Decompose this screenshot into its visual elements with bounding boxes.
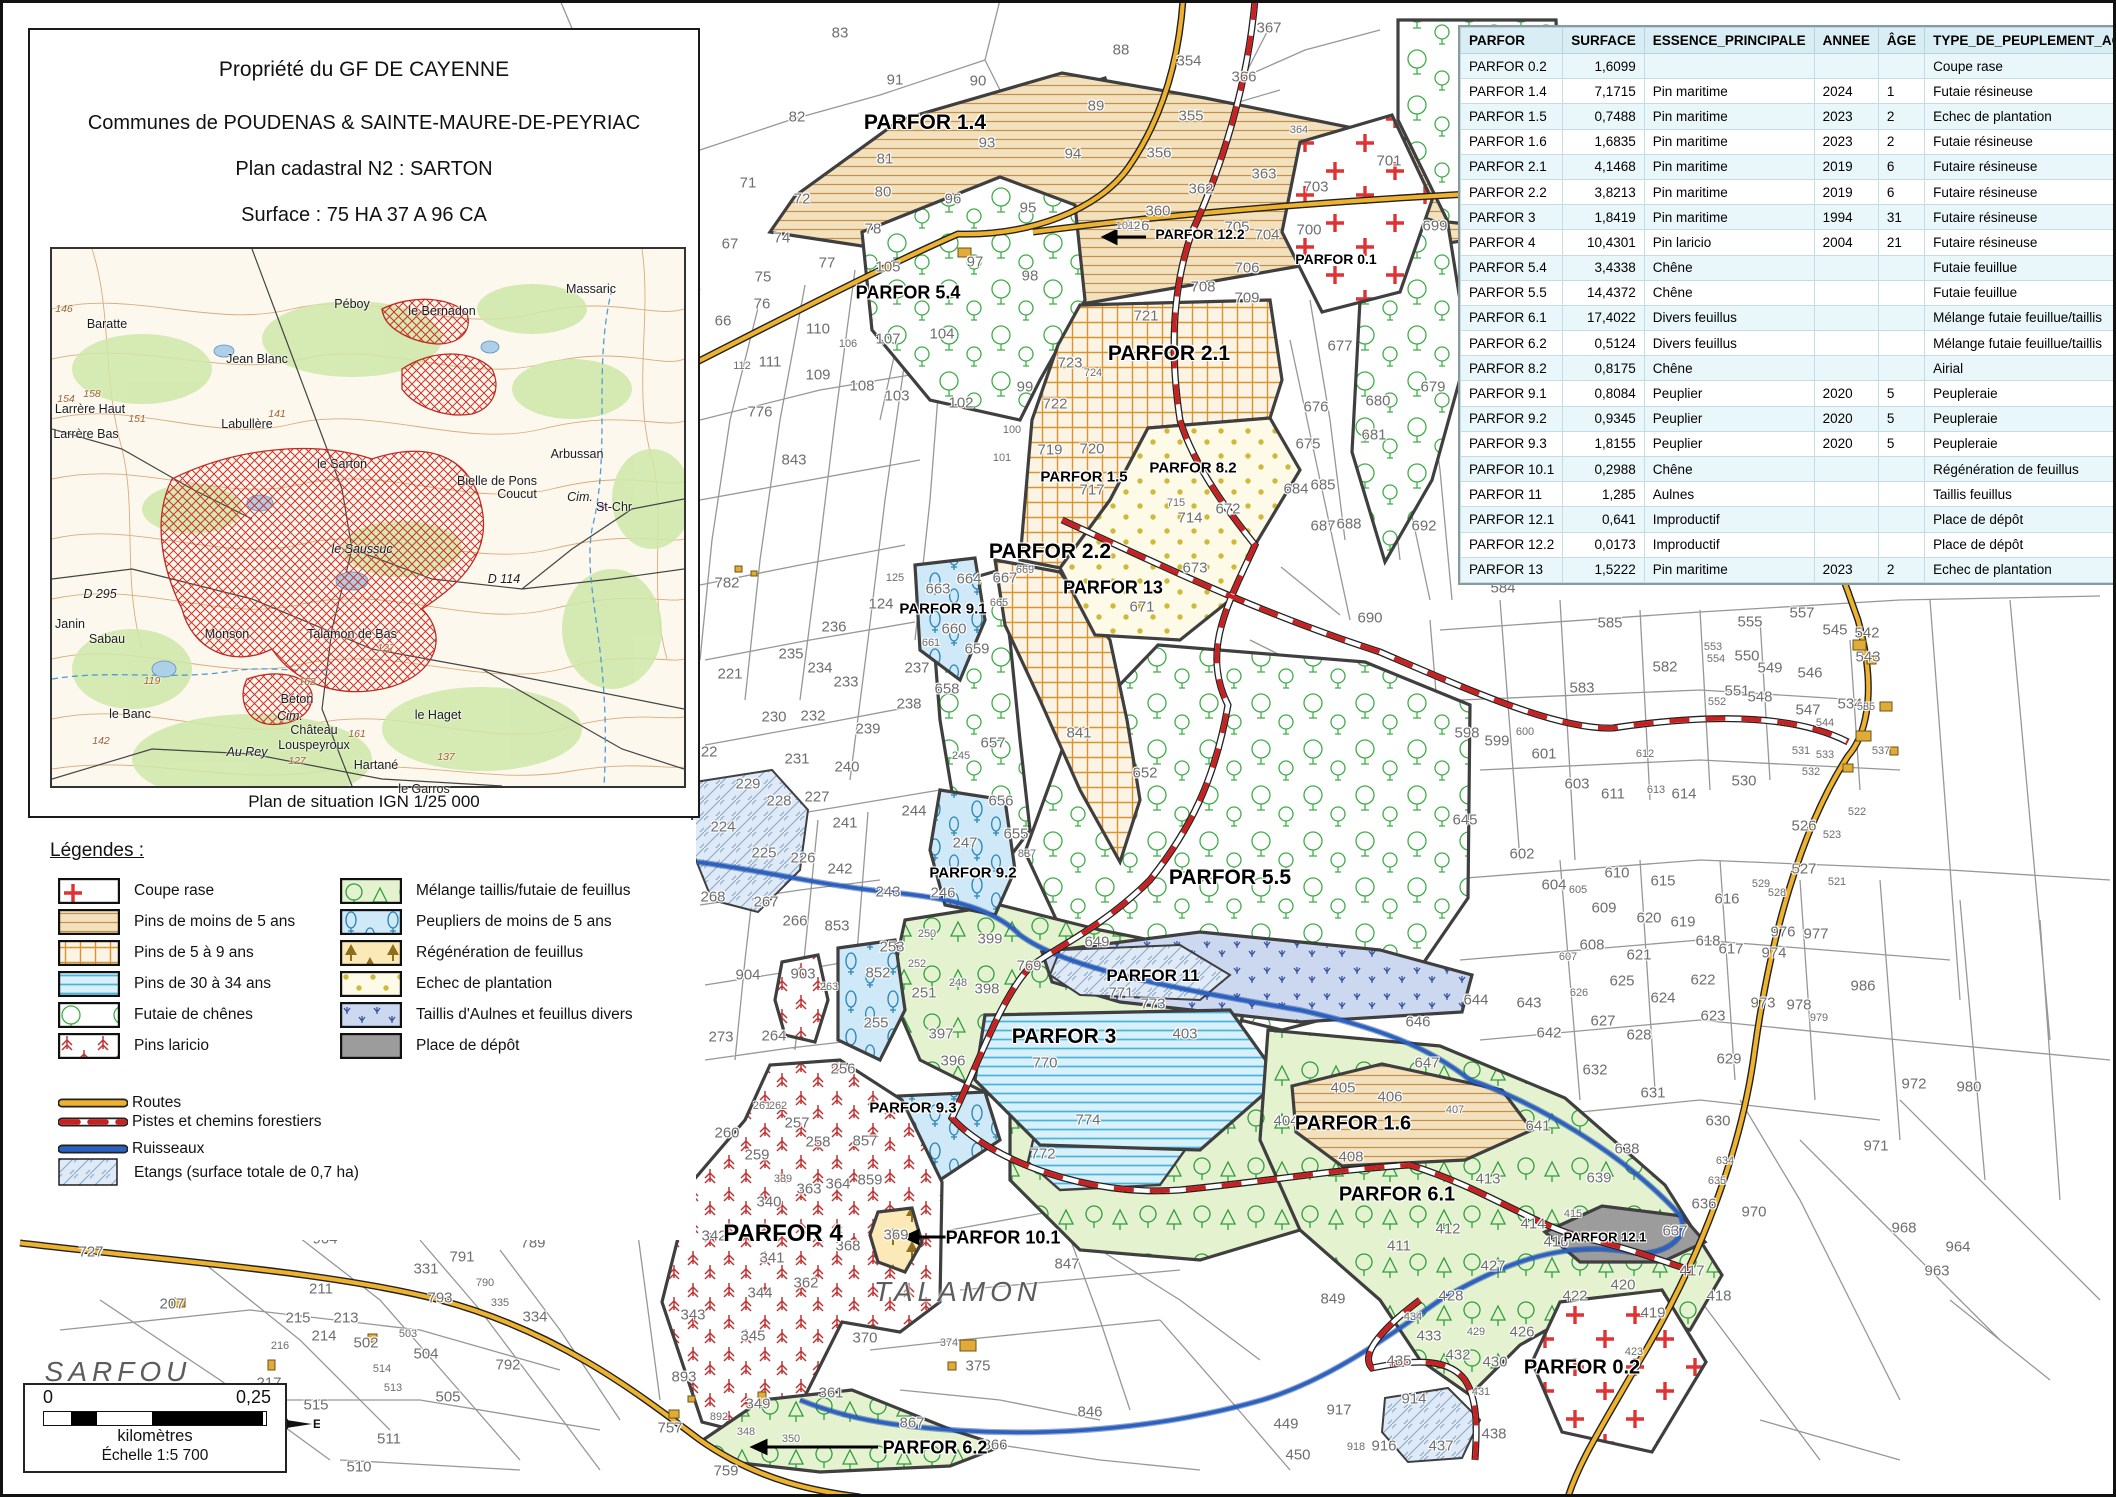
table-cell: Pin maritime	[1644, 129, 1814, 154]
legend-swatch	[58, 1033, 120, 1064]
table-cell: 1,5222	[1563, 557, 1645, 582]
parcel-number: 681	[1361, 427, 1386, 444]
parcel-number: 677	[1327, 338, 1352, 355]
parcel-number: 430	[1482, 1354, 1507, 1371]
parcel-number: 706	[1234, 260, 1259, 277]
parcel-number: 637	[1662, 1223, 1687, 1240]
parcel-number: 669	[1016, 564, 1034, 576]
inset-place-label: 141	[268, 408, 286, 420]
parcel-number: 531	[1792, 745, 1810, 757]
parcel-number: 582	[1652, 659, 1677, 676]
parcel-number: 449	[1273, 1416, 1298, 1433]
parcel-number: 411	[1387, 1238, 1411, 1255]
parcel-number: 699	[1422, 218, 1447, 235]
table-cell: PARFOR 1.4	[1461, 79, 1563, 104]
table-cell: 17,4022	[1563, 305, 1645, 330]
inset-place-label: Cim.	[567, 490, 593, 504]
table-cell: Airial	[1925, 356, 2116, 381]
parcel-number: 849	[1320, 1291, 1345, 1308]
parcel-number: 655	[1003, 826, 1028, 843]
parfor-label: PARFOR 6.2	[883, 1438, 988, 1459]
parcel-number: 792	[495, 1357, 520, 1374]
parcel-number: 555	[1737, 614, 1762, 631]
table-cell: PARFOR 11	[1461, 482, 1563, 507]
table-cell	[1878, 280, 1924, 305]
parcel-number: 679	[1420, 379, 1445, 396]
parcel-number: 403	[1172, 1026, 1197, 1043]
parcel-number: 96	[945, 191, 962, 208]
table-row: PARFOR 1.61,6835Pin maritime20232Futaie …	[1461, 129, 2116, 154]
parcel-number: 585	[1597, 615, 1622, 632]
parcel-number: 621	[1626, 947, 1651, 964]
parfor-label: PARFOR 13	[1063, 578, 1163, 599]
parcel-number: 528	[1768, 887, 1786, 899]
table-cell: Futaire résineuse	[1925, 205, 2116, 230]
parcel-number: 914	[1401, 1391, 1426, 1408]
column-header: ÂGE	[1878, 28, 1924, 54]
table-cell	[1878, 54, 1924, 79]
parcel-number: 226	[790, 850, 815, 867]
inset-place-label: St-Chr	[596, 500, 632, 514]
table-cell: PARFOR 5.4	[1461, 255, 1563, 280]
table-row: PARFOR 12.10,641ImproductifPlace de dépô…	[1461, 507, 2116, 532]
piste-line-swatch	[58, 1115, 128, 1134]
parfor-label: PARFOR 5.4	[856, 283, 961, 304]
table-cell: Echec de plantation	[1925, 104, 2116, 129]
table-cell: PARFOR 3	[1461, 205, 1563, 230]
legend-swatch	[340, 1033, 402, 1064]
parcel-number: 771	[1108, 985, 1133, 1002]
parcel-number: 234	[807, 660, 832, 677]
parcel-number: 434	[1404, 1311, 1422, 1323]
parcel-number: 431	[1472, 1386, 1490, 1398]
scale-ratio: Échelle 1:5 700	[25, 1447, 285, 1465]
parcel-number: 642	[1536, 1025, 1561, 1042]
parcel-number: 363	[796, 1181, 821, 1198]
parcel-number: 546	[1797, 665, 1822, 682]
inset-place-label: 137	[437, 751, 455, 763]
parcel-number: 533	[1816, 749, 1834, 761]
column-header: SURFACE	[1563, 28, 1645, 54]
parcel-number: 213	[333, 1310, 358, 1327]
parcel-number: 251	[911, 985, 936, 1002]
parcel-number: 770	[1032, 1055, 1057, 1072]
parcel-number: 107	[875, 331, 900, 348]
legend-swatch	[340, 940, 402, 971]
table-cell: Improductif	[1644, 532, 1814, 557]
parcel-number: 665	[990, 597, 1008, 609]
property-title: Propriété du GF DE CAYENNE	[30, 58, 698, 82]
parcel-number: 639	[1586, 1170, 1611, 1187]
table-cell	[1814, 482, 1878, 507]
table-cell: Futaie feuillue	[1925, 255, 2116, 280]
parcel-number: 532	[1802, 766, 1820, 778]
parcel-number: 979	[1810, 1012, 1828, 1024]
table-cell: Mélange futaie feuillue/taillis	[1925, 331, 2116, 356]
table-cell: 3,4338	[1563, 255, 1645, 280]
route-line-swatch	[58, 1096, 128, 1115]
parcel-number: 243	[875, 884, 900, 901]
parcel-number: 527	[1791, 861, 1816, 878]
table-row: PARFOR 9.10,8084Peuplier20205Peupleraie	[1461, 381, 2116, 406]
parfor-label: PARFOR 0.1	[1295, 251, 1376, 267]
svg-text:E: E	[313, 1417, 320, 1431]
table-row: PARFOR 5.514,4372ChêneFutaie feuillue	[1461, 280, 2116, 305]
table-row: PARFOR 131,5222Pin maritime20232Echec de…	[1461, 557, 2116, 582]
parcel-number: 598	[1454, 725, 1479, 742]
parcel-number: 253	[879, 939, 904, 956]
parcel-number: 671	[1129, 599, 1154, 616]
parcel-number: 904	[735, 967, 760, 984]
parcel-number: 267	[753, 894, 778, 911]
inset-place-label: le Saussuc	[331, 542, 392, 556]
parfor-label: PARFOR 4	[723, 1220, 843, 1248]
legend-item-label: Mélange taillis/futaie de feuillus	[416, 882, 631, 900]
parcel-number: 105	[875, 259, 900, 276]
inset-place-label: 161	[348, 728, 366, 740]
scale-bar-segments	[43, 1411, 267, 1426]
parcel-number: 976	[1770, 924, 1795, 941]
parcel-number: 657	[980, 735, 1005, 752]
parcel-number: 963	[1924, 1263, 1949, 1280]
parcel-number: 90	[970, 73, 987, 90]
parcel-number: 614	[1671, 786, 1696, 803]
parcel-number: 628	[1626, 1027, 1651, 1044]
parcel-number: 646	[1405, 1014, 1430, 1031]
parcel-number: 258	[805, 1134, 830, 1151]
parcel-number: 658	[934, 681, 959, 698]
parcel-number: 599	[1484, 733, 1509, 750]
parcel-number: 608	[1579, 937, 1604, 954]
parcel-number: 846	[1077, 1404, 1102, 1421]
legend-panel: Légendes : Coupe rasePins de moins de 5 …	[28, 820, 696, 1240]
parcel-number: 859	[857, 1172, 882, 1189]
inset-place-label: Baratte	[87, 317, 127, 331]
parfor-label: PARFOR 9.1	[899, 601, 986, 618]
parcel-number: 339	[774, 1173, 792, 1185]
table-cell: 2019	[1814, 179, 1878, 204]
parcel-number: 664	[956, 571, 981, 588]
parcel-number: 112	[733, 360, 751, 372]
table-cell: Futaire résineuse	[1925, 154, 2116, 179]
parcel-number: 505	[435, 1389, 460, 1406]
table-cell: 5	[1878, 406, 1924, 431]
parcel-number: 613	[1647, 784, 1665, 796]
table-cell: 2	[1878, 557, 1924, 582]
table-cell: 1,6835	[1563, 129, 1645, 154]
parcel-number: 700	[1296, 222, 1321, 239]
parcel-number: 406	[1377, 1089, 1402, 1106]
table-cell: PARFOR 13	[1461, 557, 1563, 582]
parfor-label: PARFOR 8.2	[1149, 460, 1236, 477]
inset-place-label: 142	[92, 735, 110, 747]
table-cell: 2004	[1814, 230, 1878, 255]
table-cell: PARFOR 9.3	[1461, 431, 1563, 456]
parcel-number: 636	[1691, 1196, 1716, 1213]
parcel-number: 504	[413, 1346, 438, 1363]
table-cell: 2020	[1814, 381, 1878, 406]
parcel-number: 72	[794, 191, 811, 208]
inset-place-label: le Haget	[415, 708, 462, 722]
parcel-number: 356	[1146, 145, 1171, 162]
parcel-number: 273	[708, 1029, 733, 1046]
table-cell: 6	[1878, 179, 1924, 204]
parcel-number: 418	[1706, 1288, 1731, 1305]
table-cell: PARFOR 8.2	[1461, 356, 1563, 381]
table-cell	[1814, 54, 1878, 79]
parcel-number: 396	[940, 1053, 965, 1070]
table-row: PARFOR 2.14,1468Pin maritime20196Futaire…	[1461, 154, 2116, 179]
parcel-number: 918	[1347, 1441, 1365, 1453]
parcel-number: 605	[1569, 884, 1587, 896]
parcel-number: 231	[784, 751, 809, 768]
parcel-number: 772	[1030, 1146, 1055, 1163]
parcel-number: 722	[1042, 396, 1067, 413]
inset-place-label: Péboy	[334, 297, 369, 311]
parcel-number: 248	[949, 977, 967, 989]
legend-swatch	[58, 940, 120, 971]
parcel-number: 331	[413, 1261, 438, 1278]
parcel-number: 367	[1256, 20, 1281, 37]
legend-swatch	[58, 1002, 120, 1033]
parcel-number: 647	[1414, 1055, 1439, 1072]
table-row: PARFOR 8.20,8175ChêneAirial	[1461, 356, 2116, 381]
parcel-number: 420	[1610, 1277, 1635, 1294]
table-cell: Futaie résineuse	[1925, 79, 2116, 104]
inset-place-label: D 114	[488, 572, 520, 586]
table-cell: Divers feuillus	[1644, 331, 1814, 356]
parcel-number: 970	[1741, 1204, 1766, 1221]
parcel-number: 106	[839, 338, 857, 350]
parcel-number: 228	[766, 793, 791, 810]
parfor-label: PARFOR 0.2	[1524, 1357, 1640, 1380]
parcel-number: 978	[1786, 997, 1811, 1014]
parcel-number: 790	[476, 1277, 494, 1289]
table-cell: PARFOR 5.5	[1461, 280, 1563, 305]
parcel-number: 66	[715, 313, 732, 330]
table-cell	[1878, 457, 1924, 482]
parcel-number: 583	[1569, 680, 1594, 697]
parcel-number: 720	[1079, 441, 1104, 458]
parcel-number: 617	[1718, 941, 1743, 958]
parcel-number: 776	[747, 404, 772, 421]
parcel-number: 363	[1251, 166, 1276, 183]
parcel-number: 847	[1054, 1256, 1079, 1273]
parcel-number: 769	[1016, 958, 1041, 975]
table-cell: PARFOR 12.1	[1461, 507, 1563, 532]
table-cell: 2019	[1814, 154, 1878, 179]
legend-item-label: Régénération de feuillus	[416, 944, 583, 962]
legend-etang-label: Etangs (surface totale de 0,7 ha)	[134, 1164, 359, 1182]
parcel-number: 542	[1854, 625, 1879, 642]
parcel-number: 676	[1303, 399, 1328, 416]
parcel-number: 417	[1679, 1263, 1704, 1280]
parcel-number: 335	[491, 1297, 509, 1309]
parcel-number: 89	[1088, 98, 1105, 115]
parcel-number: 857	[852, 1133, 877, 1150]
parcel-number: 601	[1531, 746, 1556, 763]
table-cell	[1878, 255, 1924, 280]
parcel-number: 262	[769, 1100, 787, 1112]
parcel-number: 793	[427, 1290, 452, 1307]
table-cell: Pin maritime	[1644, 79, 1814, 104]
parcel-number: 502	[353, 1335, 378, 1352]
parcel-number: 67	[722, 236, 739, 253]
table-cell: 0,8175	[1563, 356, 1645, 381]
communes-subtitle: Communes de POUDENAS & SAINTE-MAURE-DE-P…	[30, 112, 698, 135]
table-cell: 5	[1878, 431, 1924, 456]
parcel-number: 432	[1445, 1347, 1470, 1364]
table-cell	[1814, 255, 1878, 280]
table-cell: PARFOR 6.2	[1461, 331, 1563, 356]
parcel-number: 350	[782, 1433, 800, 1445]
table-cell: Coupe rase	[1925, 54, 2116, 79]
parcel-number: 974	[1761, 945, 1786, 962]
parcel-number: 554	[1707, 653, 1725, 665]
parcel-number: 626	[1570, 987, 1588, 999]
column-header: ESSENCE_PRINCIPALE	[1644, 28, 1814, 54]
table-cell: Improductif	[1644, 507, 1814, 532]
inset-place-label: Janin	[55, 617, 85, 631]
table-cell: Peupleraie	[1925, 381, 2116, 406]
parcel-number: 91	[887, 72, 904, 89]
table-cell: Pin maritime	[1644, 154, 1814, 179]
parcel-number: 622	[1690, 972, 1715, 989]
table-cell: Pin maritime	[1644, 205, 1814, 230]
parcel-number: 366	[1231, 69, 1256, 86]
parcel-number: 88	[1113, 42, 1130, 59]
table-cell: 0,0173	[1563, 532, 1645, 557]
table-cell: Taillis feuillus	[1925, 482, 2116, 507]
parcel-number: 612	[1636, 748, 1654, 760]
table-cell: PARFOR 10.1	[1461, 457, 1563, 482]
inset-place-label: Monson	[205, 627, 249, 641]
table-cell: Futaire résineuse	[1925, 179, 2116, 204]
parcel-number: 108	[849, 378, 874, 395]
parcel-number: 727	[78, 1244, 103, 1261]
parcel-number: 629	[1716, 1051, 1741, 1068]
legend-item-label: Pins laricio	[134, 1037, 209, 1055]
parcel-number: 354	[1176, 53, 1201, 70]
parfor-label: PARFOR 6.1	[1339, 1184, 1455, 1207]
parcel-number: 652	[1132, 765, 1157, 782]
table-cell: 2020	[1814, 431, 1878, 456]
parcel-number: 236	[821, 619, 846, 636]
parcel-number: 264	[761, 1028, 786, 1045]
legend-item-label: Futaie de chênes	[134, 1006, 253, 1024]
inset-place-label: 154	[57, 393, 75, 405]
table-cell: 1994	[1814, 205, 1878, 230]
table-cell: 5	[1878, 381, 1924, 406]
inset-place-label: Cim.	[277, 709, 303, 723]
table-cell: Pin maritime	[1644, 557, 1814, 582]
inset-place-label: 127	[288, 755, 306, 767]
parcel-number: 893	[671, 1369, 696, 1386]
table-cell	[1814, 532, 1878, 557]
surface-subtitle: Surface : 75 HA 37 A 96 CA	[30, 204, 698, 227]
legend-item-label: Pins de 5 à 9 ans	[134, 944, 254, 962]
parcel-number: 427	[1480, 1258, 1505, 1275]
legend-swatch	[340, 878, 402, 909]
scale-max: 0,25	[236, 1387, 271, 1408]
parcel-number: 407	[1446, 1104, 1464, 1116]
parcel-number: 241	[832, 815, 857, 832]
table-row: PARFOR 12.20,0173ImproductifPlace de dép…	[1461, 532, 2116, 557]
parfor-label: PARFOR 12.2	[1155, 226, 1244, 242]
parcel-number: 99	[1017, 379, 1034, 396]
parcel-number: 649	[1084, 934, 1109, 951]
parcel-number: 111	[759, 354, 782, 371]
parcel-number: 408	[1338, 1149, 1363, 1166]
parcel-number: 362	[793, 1275, 818, 1292]
parcel-number: 688	[1336, 516, 1361, 533]
parfor-table-header: PARFORSURFACEESSENCE_PRINCIPALEANNEEÂGET…	[1461, 28, 2116, 54]
parcel-number: 80	[875, 184, 892, 201]
parcel-number: 503	[399, 1328, 417, 1340]
table-cell: Régénération de feuillus	[1925, 457, 2116, 482]
inset-place-label: 127	[377, 642, 395, 654]
table-cell	[1814, 280, 1878, 305]
parcel-number: 364	[1290, 124, 1308, 136]
parcel-number: 76	[754, 296, 771, 313]
parcel-number: 632	[1582, 1062, 1607, 1079]
inset-place-label: Hartané	[354, 758, 398, 772]
parcel-number: 543	[1855, 649, 1880, 666]
parcel-number: 616	[1714, 891, 1739, 908]
parcel-number: 513	[384, 1382, 402, 1394]
parfor-label: PARFOR 10.1	[946, 1228, 1061, 1249]
legend-swatch	[340, 971, 402, 1002]
parcel-number: 438	[1481, 1426, 1506, 1443]
inset-place-label: Coucut	[497, 487, 537, 501]
table-row: PARFOR 0.21,6099Coupe rase	[1461, 54, 2116, 79]
inset-place-label: Larrère Bas	[53, 427, 118, 441]
table-row: PARFOR 111,285AulnesTaillis feuillus	[1461, 482, 2116, 507]
table-cell: PARFOR 1.6	[1461, 129, 1563, 154]
parcel-number: 774	[1075, 1112, 1100, 1129]
table-cell: Aulnes	[1644, 482, 1814, 507]
parcel-number: 225	[751, 845, 776, 862]
parcel-number: 641	[1525, 1118, 1550, 1135]
parcel-number: 708	[1190, 279, 1215, 296]
table-cell	[1814, 507, 1878, 532]
parcel-number: 413	[1475, 1171, 1500, 1188]
map-sheet: 8388354367366355899435636336236036470370…	[0, 0, 2116, 1497]
parcel-number: 544	[1816, 717, 1834, 729]
table-cell	[1878, 305, 1924, 330]
parcel-number: 672	[1215, 501, 1240, 518]
parcel-number: 675	[1295, 436, 1320, 453]
parcel-number: 100	[1003, 424, 1021, 436]
parcel-number: 703	[1303, 179, 1328, 196]
table-cell: 2023	[1814, 129, 1878, 154]
parcel-number: 625	[1609, 973, 1634, 990]
parcel-number: 685	[1310, 477, 1335, 494]
parcel-number: 268	[700, 889, 725, 906]
parcel-number: 916	[1371, 1438, 1396, 1455]
table-cell: 2023	[1814, 104, 1878, 129]
table-cell: 2024	[1814, 79, 1878, 104]
parcel-number: 511	[377, 1431, 401, 1448]
parfor-label: PARFOR 3	[1012, 1025, 1117, 1049]
legend-item-label: Place de dépôt	[416, 1037, 519, 1055]
inset-place-label: le Bernadon	[408, 304, 475, 318]
place-label: TALAMON	[874, 1276, 1042, 1308]
parcel-number: 433	[1416, 1328, 1441, 1345]
table-cell: 1	[1878, 79, 1924, 104]
inset-place-label: Sabau	[89, 632, 125, 646]
table-cell	[1814, 305, 1878, 330]
